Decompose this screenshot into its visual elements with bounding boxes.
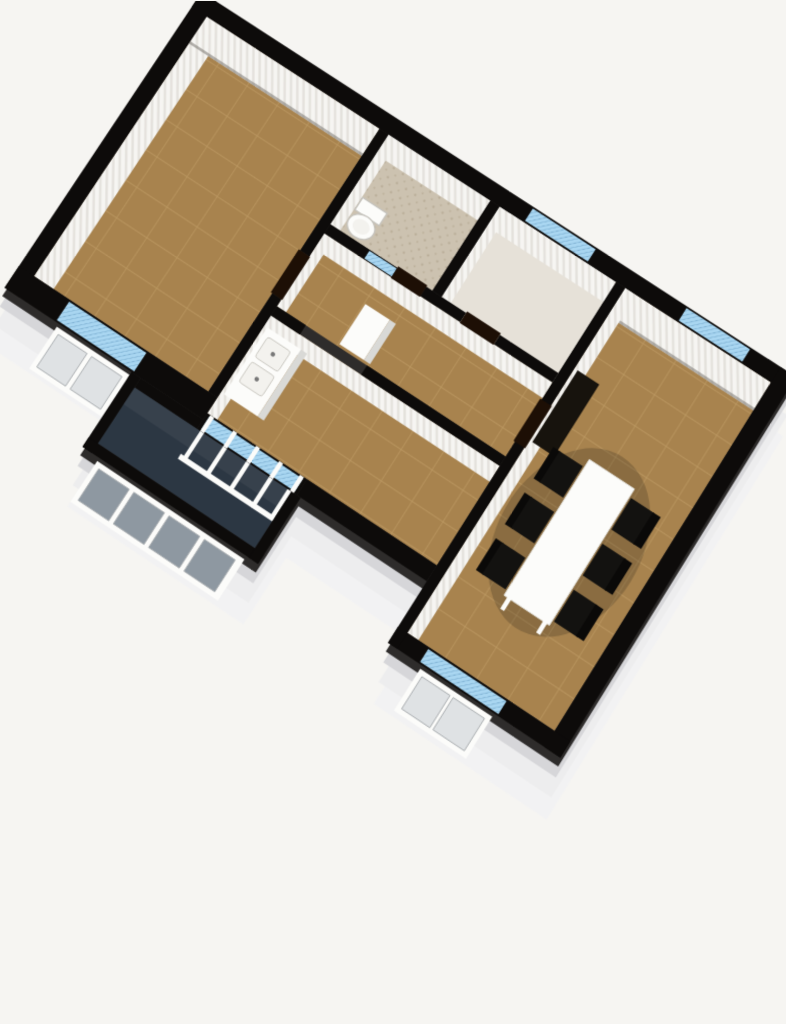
floorplan-render <box>0 1 786 1024</box>
floorplan-viewport: Bedroom Bathroom Entry Hall Hallway Kitc… <box>0 0 786 1024</box>
plan-rotated-group <box>0 1 786 826</box>
perspective-wrapper <box>0 1 786 1024</box>
